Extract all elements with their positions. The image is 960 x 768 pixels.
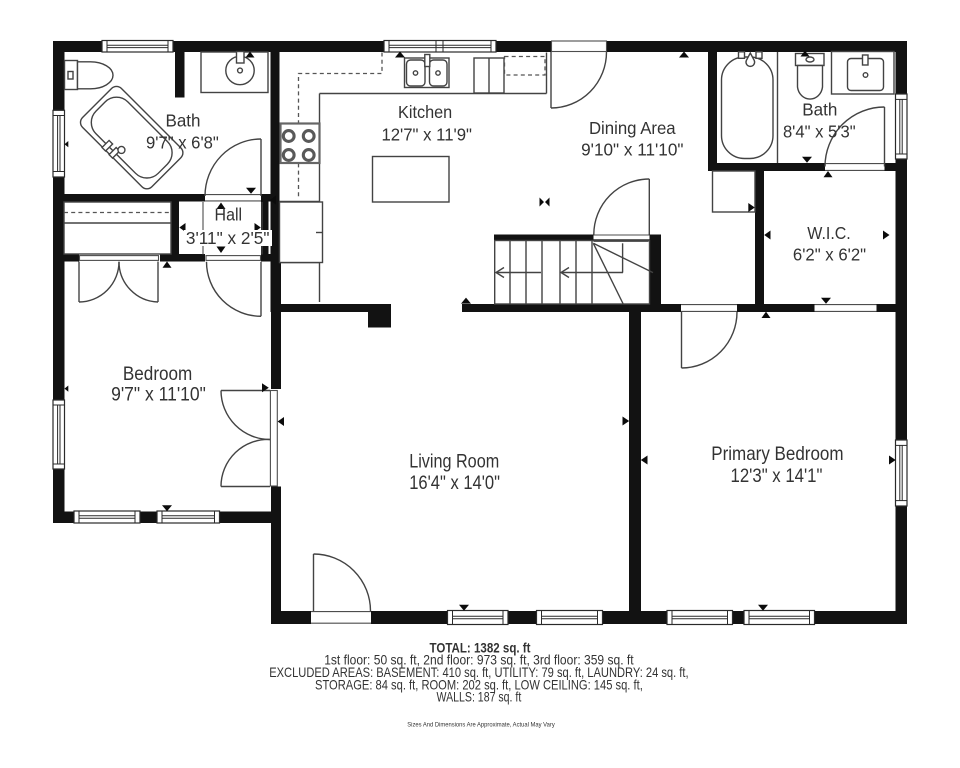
svg-text:12'3" x 14'1": 12'3" x 14'1" [731, 465, 823, 487]
svg-text:Sizes And Dimensions Are Appro: Sizes And Dimensions Are Approximate, Ac… [407, 722, 555, 729]
svg-text:Primary Bedroom: Primary Bedroom [711, 443, 843, 465]
svg-text:Hall: Hall [215, 204, 243, 224]
svg-text:Bath: Bath [166, 110, 201, 130]
svg-text:Living Room: Living Room [409, 451, 499, 473]
svg-text:W.I.C.: W.I.C. [807, 223, 851, 243]
svg-text:12'7" x 11'9": 12'7" x 11'9" [381, 125, 472, 145]
svg-text:3'11" x 2'5": 3'11" x 2'5" [186, 228, 270, 248]
svg-text:8'4" x 5'3": 8'4" x 5'3" [783, 122, 856, 142]
svg-text:9'7" x 11'10": 9'7" x 11'10" [111, 384, 206, 406]
svg-text:Dining Area: Dining Area [589, 118, 676, 138]
svg-text:16'4" x 14'0": 16'4" x 14'0" [409, 472, 500, 494]
svg-text:Bedroom: Bedroom [123, 363, 192, 385]
svg-text:6'2" x 6'2": 6'2" x 6'2" [793, 245, 866, 265]
svg-text:Kitchen: Kitchen [398, 102, 452, 122]
svg-text:Bath: Bath [802, 99, 837, 119]
svg-text:9'10" x 11'10": 9'10" x 11'10" [581, 139, 683, 159]
svg-text:WALLS: 187 sq. ft: WALLS: 187 sq. ft [437, 689, 522, 705]
svg-text:9'7" x 6'8": 9'7" x 6'8" [146, 133, 219, 153]
